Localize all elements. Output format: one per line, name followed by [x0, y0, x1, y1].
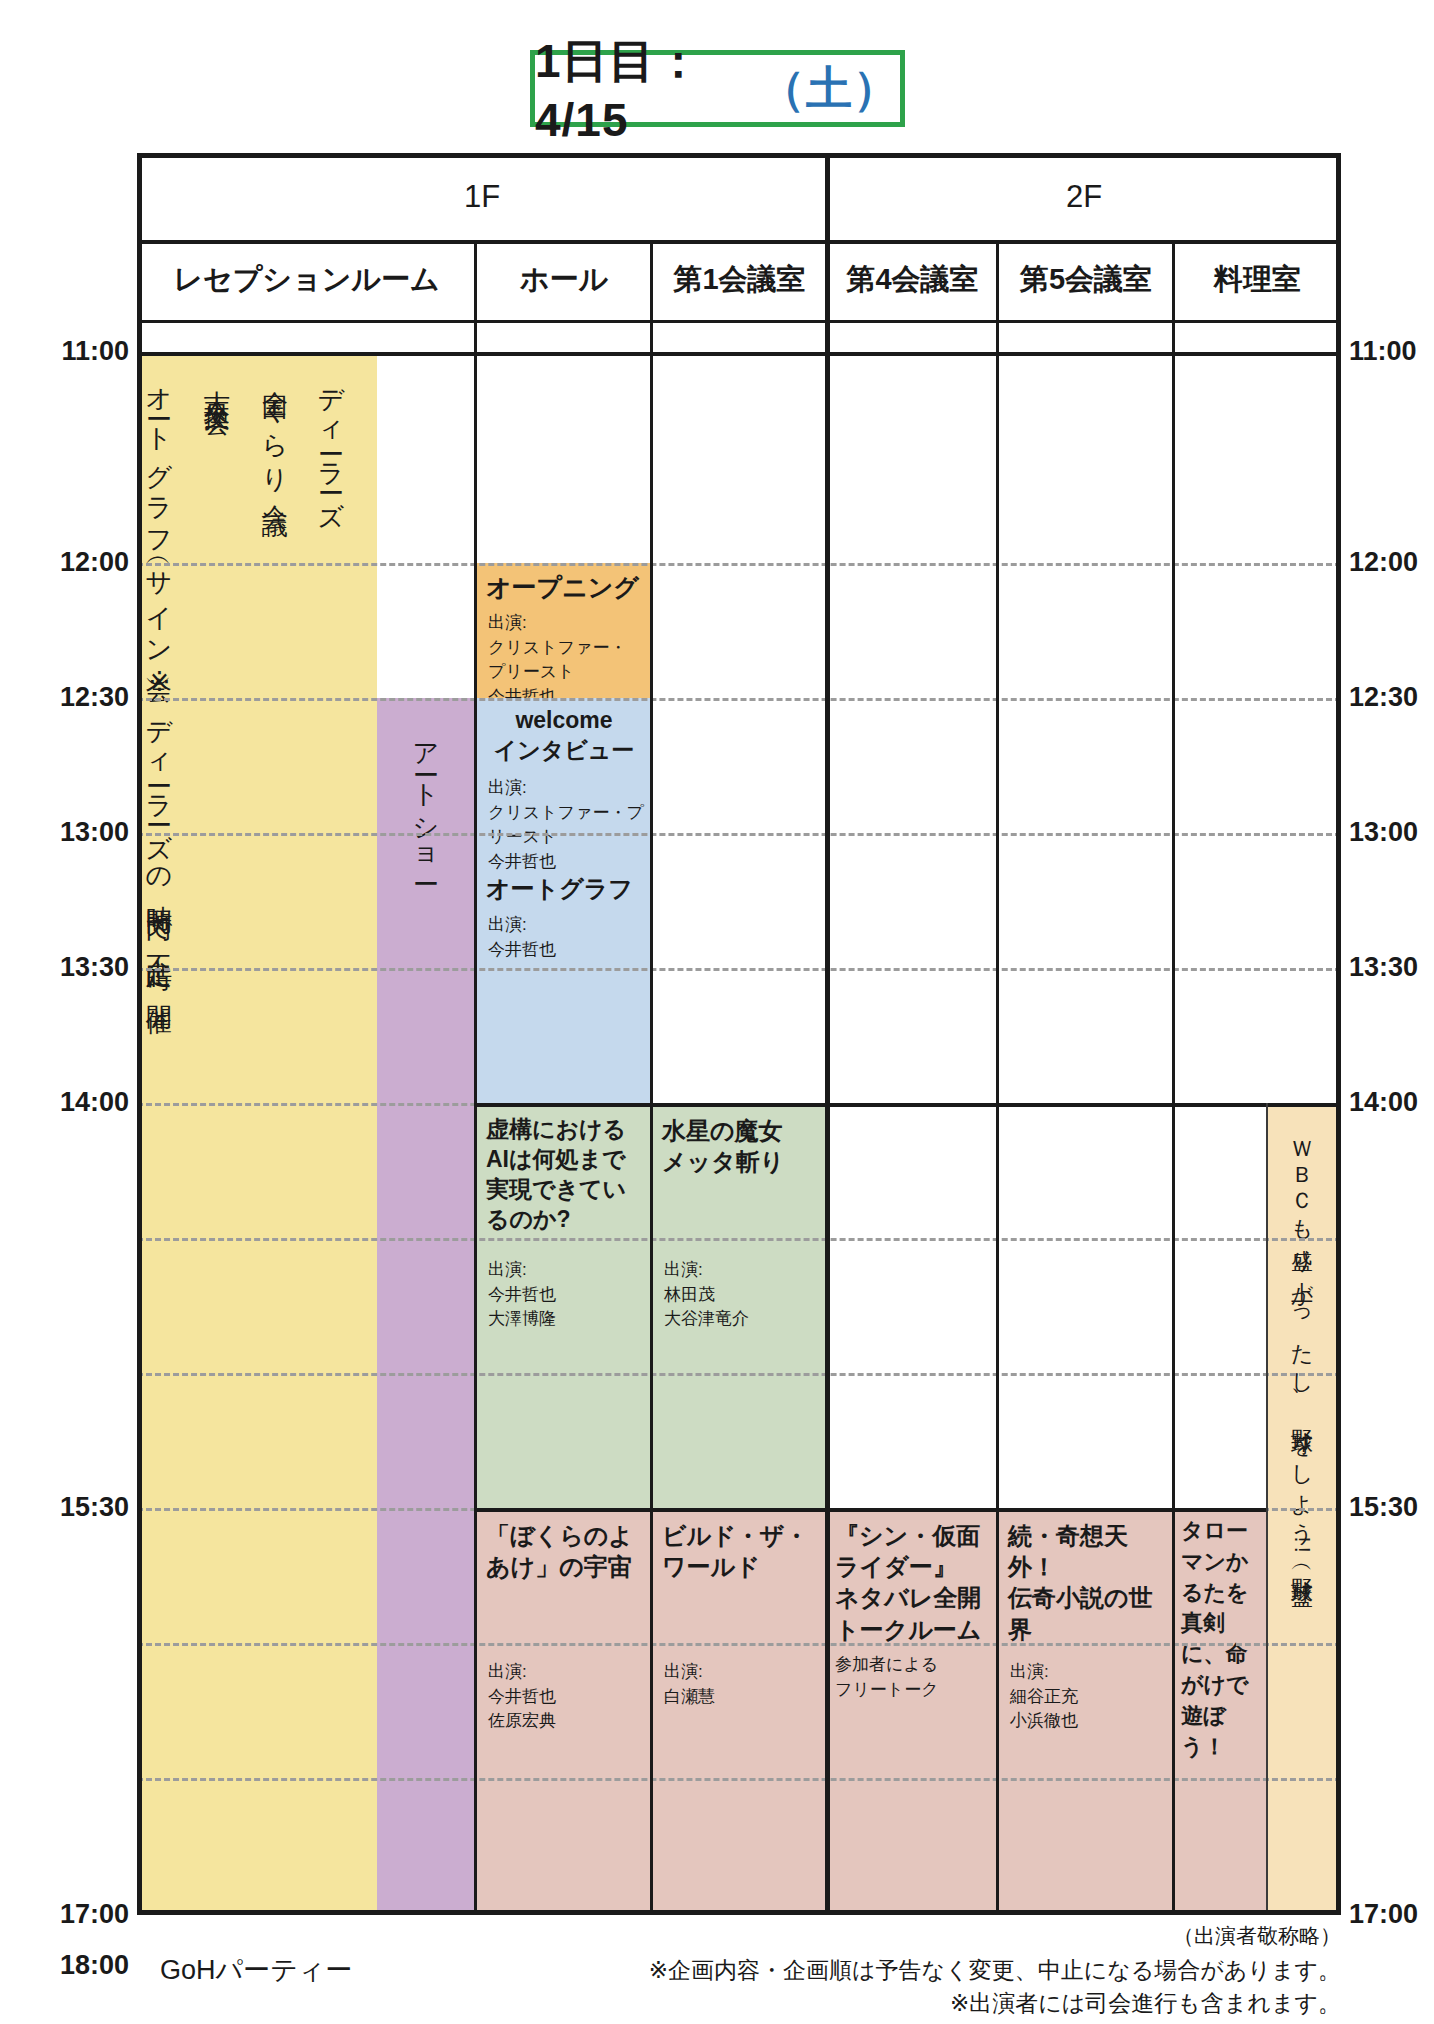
divider-cooking-wbc: [1266, 1103, 1268, 1915]
time-label-right-1330: 13:30: [1349, 954, 1418, 981]
event-block-kiso-tengai: 続・奇想天外！ 伝奇小説の世界 出演: 細谷正充 小浜徹也: [998, 1508, 1174, 1915]
header-floor-2f: 2F: [827, 153, 1341, 240]
table-border-right: [1336, 153, 1341, 1915]
divider-meeting4-meeting5: [996, 240, 999, 1915]
event-kiso-tengai-cast: 出演: 細谷正充 小浜徹也: [1010, 1660, 1168, 1734]
event-bokura-title: 「ぼくらのよあけ」の宇宙: [476, 1508, 652, 1582]
event-block-welcome-interview: welcome インタビュー 出演: クリストファー・プ リースト 今井哲也 オ…: [476, 698, 652, 1103]
event-kurari-meeting: 全国くらり会議: [261, 370, 288, 494]
time-label-left-1800: 18:00: [29, 1952, 129, 1979]
page-title-date: 1日目：4/15: [535, 31, 759, 147]
table-border-bottom: [137, 1910, 1341, 1915]
moderator-note: ※出演者には司会進行も含まれます。: [400, 1988, 1341, 2019]
event-autograph-hall-title: オートグラフ: [476, 873, 643, 904]
time-label-right-1400: 14:00: [1349, 1089, 1418, 1116]
event-welcome-title: welcome インタビュー: [476, 698, 652, 766]
event-fiction-ai-cast: 出演: 今井哲也 大澤博隆: [488, 1258, 646, 1332]
time-label-left-1400: 14:00: [29, 1089, 129, 1116]
dashed-gridline-1230: [137, 698, 1341, 701]
event-kiso-tengai-title: 続・奇想天外！ 伝奇小説の世界: [998, 1508, 1174, 1645]
time-label-right-1230: 12:30: [1349, 684, 1418, 711]
header-floor-1f: 1F: [137, 153, 827, 240]
time-label-right-1100: 11:00: [1349, 338, 1417, 365]
event-block-opening: オープニング 出演: クリストファー・ プリースト 今井哲也: [476, 563, 652, 698]
schedule-page: 1日目：4/15（土） 11:00 12:00 12:30 13:00 13:3…: [0, 0, 1434, 2024]
divider-meeting5-cooking: [1172, 240, 1175, 1915]
event-dealers: ディーラーズ: [317, 370, 344, 518]
event-block-fiction-ai: 虚構におけるAIは何処まで実現できているのか? 出演: 今井哲也 大澤博隆: [476, 1103, 652, 1508]
event-build-cast: 出演: 白瀬慧: [664, 1660, 821, 1709]
table-border-top: [137, 153, 1341, 158]
gridline-1100-solid: [137, 352, 1341, 356]
event-welcome-cast: 出演: クリストファー・プ リースト 今井哲也: [488, 776, 646, 875]
event-block-art-show: アートショー: [377, 698, 476, 1915]
header-floor-separator: [137, 240, 1341, 244]
header-room-separator: [137, 320, 1341, 323]
schedule-grid: 1F 2F レセプションルーム ホール 第1会議室 第4会議室 第5会議室 料理…: [137, 153, 1341, 1915]
time-label-right-1530: 15:30: [1349, 1494, 1418, 1521]
event-build-title: ビルド・ザ・ワールド: [652, 1508, 827, 1582]
event-fiction-ai-title: 虚構におけるAIは何処まで実現できているのか?: [476, 1103, 652, 1235]
dashed-gridline-1430: [137, 1238, 1341, 1241]
goh-party-label: GoHパーティー: [160, 1952, 352, 1988]
gridline-1530-solid: [476, 1508, 1267, 1512]
event-opening-cast: 出演: クリストファー・ プリースト 今井哲也: [488, 611, 646, 710]
dashed-gridline-1330: [137, 968, 1341, 971]
event-block-suisei-majo: 水星の魔女 メッタ斬り 出演: 林田茂 大谷津竜介: [652, 1103, 827, 1508]
header-room-meeting5: 第5会議室: [998, 240, 1174, 320]
divider-hall-meeting1: [650, 240, 653, 1915]
header-room-meeting1: 第1会議室: [652, 240, 827, 320]
header-room-reception: レセプションルーム: [137, 240, 476, 320]
time-label-left-1200: 12:00: [29, 549, 129, 576]
page-title-weekday: （土）: [759, 58, 900, 120]
event-opening-title: オープニング: [476, 563, 652, 604]
event-autograph-hall-cast: 出演: 今井哲也: [488, 913, 646, 962]
event-block-reception-allday: ディーラーズ 全国くらり会議 古本交換会 オートグラフ（サイン会）※ディーラーズ…: [137, 352, 377, 1915]
divider-1f-2f: [825, 153, 830, 1915]
time-label-right-1700: 17:00: [1349, 1901, 1418, 1928]
time-label-left-1700: 17:00: [29, 1901, 129, 1928]
event-taroman-title: タローマンかるたを真剣に、命がけで遊ぼう！: [1174, 1508, 1267, 1762]
gridline-1400-solid: [476, 1103, 1341, 1107]
event-suisei-majo-title: 水星の魔女 メッタ斬り: [652, 1103, 827, 1177]
event-shin-rider-title: 『シン・仮面ライダー』 ネタバレ全開 トークルーム: [827, 1508, 998, 1645]
time-label-left-1530: 15:30: [29, 1494, 129, 1521]
event-bokura-cast: 出演: 今井哲也 佐原宏典: [488, 1660, 646, 1734]
event-block-shin-kamen-rider: 『シン・仮面ライダー』 ネタバレ全開 トークルーム 参加者による フリートーク: [827, 1508, 998, 1915]
event-book-exchange: 古本交換会: [203, 370, 230, 395]
event-shin-rider-cast: 参加者による フリートーク: [835, 1653, 992, 1702]
header-room-cooking: 料理室: [1174, 240, 1341, 320]
schedule-change-note: ※企画内容・企画順は予告なく変更、中止になる場合があります。: [400, 1955, 1341, 1986]
time-label-right-1200: 12:00: [1349, 549, 1418, 576]
honorifics-note: （出演者敬称略）: [400, 1922, 1341, 1950]
event-autograph-sign: オートグラフ（サイン会）※ディーラーズの時間内で不定時に開催: [145, 370, 172, 995]
header-room-meeting4: 第4会議室: [827, 240, 998, 320]
event-block-taroman-karuta: タローマンかるたを真剣に、命がけで遊ぼう！: [1174, 1508, 1267, 1915]
dashed-gridline-1630: [137, 1778, 1341, 1781]
event-suisei-majo-cast: 出演: 林田茂 大谷津竜介: [664, 1258, 821, 1332]
dashed-gridline-1200: [137, 563, 1341, 566]
time-label-right-1300: 13:00: [1349, 819, 1418, 846]
header-room-hall: ホール: [476, 240, 652, 320]
time-label-left-1300: 13:00: [29, 819, 129, 846]
event-art-show: アートショー: [412, 726, 439, 875]
time-label-left-1230: 12:30: [29, 684, 129, 711]
time-label-left-1100: 11:00: [29, 338, 129, 365]
table-border-left: [137, 153, 142, 1915]
event-block-build-the-world: ビルド・ザ・ワールド 出演: 白瀬慧: [652, 1508, 827, 1915]
divider-reception-hall: [474, 240, 477, 1915]
dashed-gridline-1600: [137, 1643, 1341, 1646]
dashed-gridline-1500: [137, 1373, 1341, 1376]
event-block-bokura-no-yoake: 「ぼくらのよあけ」の宇宙 出演: 今井哲也 佐原宏典: [476, 1508, 652, 1915]
page-title: 1日目：4/15（土）: [530, 50, 905, 127]
time-label-left-1330: 13:30: [29, 954, 129, 981]
dashed-gridline-1300: [137, 833, 1341, 836]
